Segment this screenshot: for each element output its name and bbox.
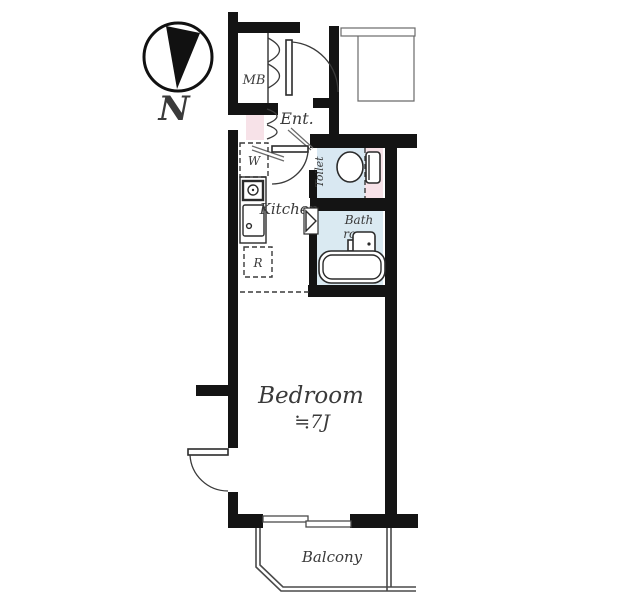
- bath-sink-drain-dot: [367, 242, 370, 245]
- wall-right: [385, 140, 397, 528]
- meter-box: MB: [242, 33, 280, 103]
- washer-label: W: [248, 154, 262, 168]
- bedroom: Bedroom ≒7J: [188, 383, 364, 491]
- hall-door-swing-arc: [272, 152, 308, 184]
- window-panel-right: [306, 521, 351, 527]
- north-label: N: [157, 89, 191, 129]
- shoe-cabinet-door-lower: [267, 125, 277, 139]
- wall-entrance-stub: [313, 98, 339, 108]
- balcony-rail-right: [387, 528, 391, 591]
- entrance-label: Ent.: [279, 109, 314, 128]
- wall-top: [228, 22, 300, 33]
- wall-bath-bottom: [308, 285, 391, 297]
- hall-door-leaf: [272, 146, 308, 152]
- balcony-window: [263, 516, 351, 527]
- balcony-label: Balcony: [301, 548, 363, 566]
- mb-label: MB: [242, 73, 266, 88]
- wall-toilet-top: [310, 134, 417, 148]
- hall-door: [272, 146, 308, 184]
- wall-bath-left: [309, 232, 317, 285]
- north-compass: N: [144, 23, 212, 129]
- corridor-outline: [341, 28, 415, 101]
- stove-burner-dot: [252, 189, 254, 191]
- bedroom-west-door-leaf: [188, 449, 228, 455]
- north-arrow-icon: [166, 26, 200, 89]
- floorplan-drawing: N MB: [0, 0, 622, 600]
- balcony: Balcony: [256, 528, 416, 591]
- sink-drain-icon: [247, 224, 252, 229]
- wall-bottom-right: [350, 514, 418, 528]
- front-door-leaf: [286, 40, 292, 95]
- bedroom-size-label: ≒7J: [294, 411, 331, 433]
- bedroom-west-door-arc: [190, 455, 228, 491]
- floorplan-page: N MB: [0, 0, 622, 600]
- toilet-bowl-icon: [337, 152, 363, 182]
- mb-door-leaf-lower: [268, 64, 280, 88]
- wall-bottom-left: [228, 514, 263, 528]
- corridor-railing: [341, 28, 415, 36]
- refrigerator-label: R: [252, 256, 262, 270]
- window-panel-left: [263, 516, 308, 522]
- bathroom-label-line1: Bath: [344, 213, 374, 227]
- corridor-boundary-line: [358, 36, 414, 101]
- wall-left-middle: [228, 130, 238, 448]
- bedroom-label: Bedroom: [257, 383, 364, 409]
- mb-door-leaf-upper: [268, 38, 280, 62]
- wall-mb-bottom: [228, 103, 278, 115]
- toilet-tank-icon: [366, 152, 380, 183]
- wall-left-stub: [196, 385, 232, 396]
- toilet-label: Toilet: [313, 156, 326, 188]
- wall-toilet-bath: [310, 198, 391, 211]
